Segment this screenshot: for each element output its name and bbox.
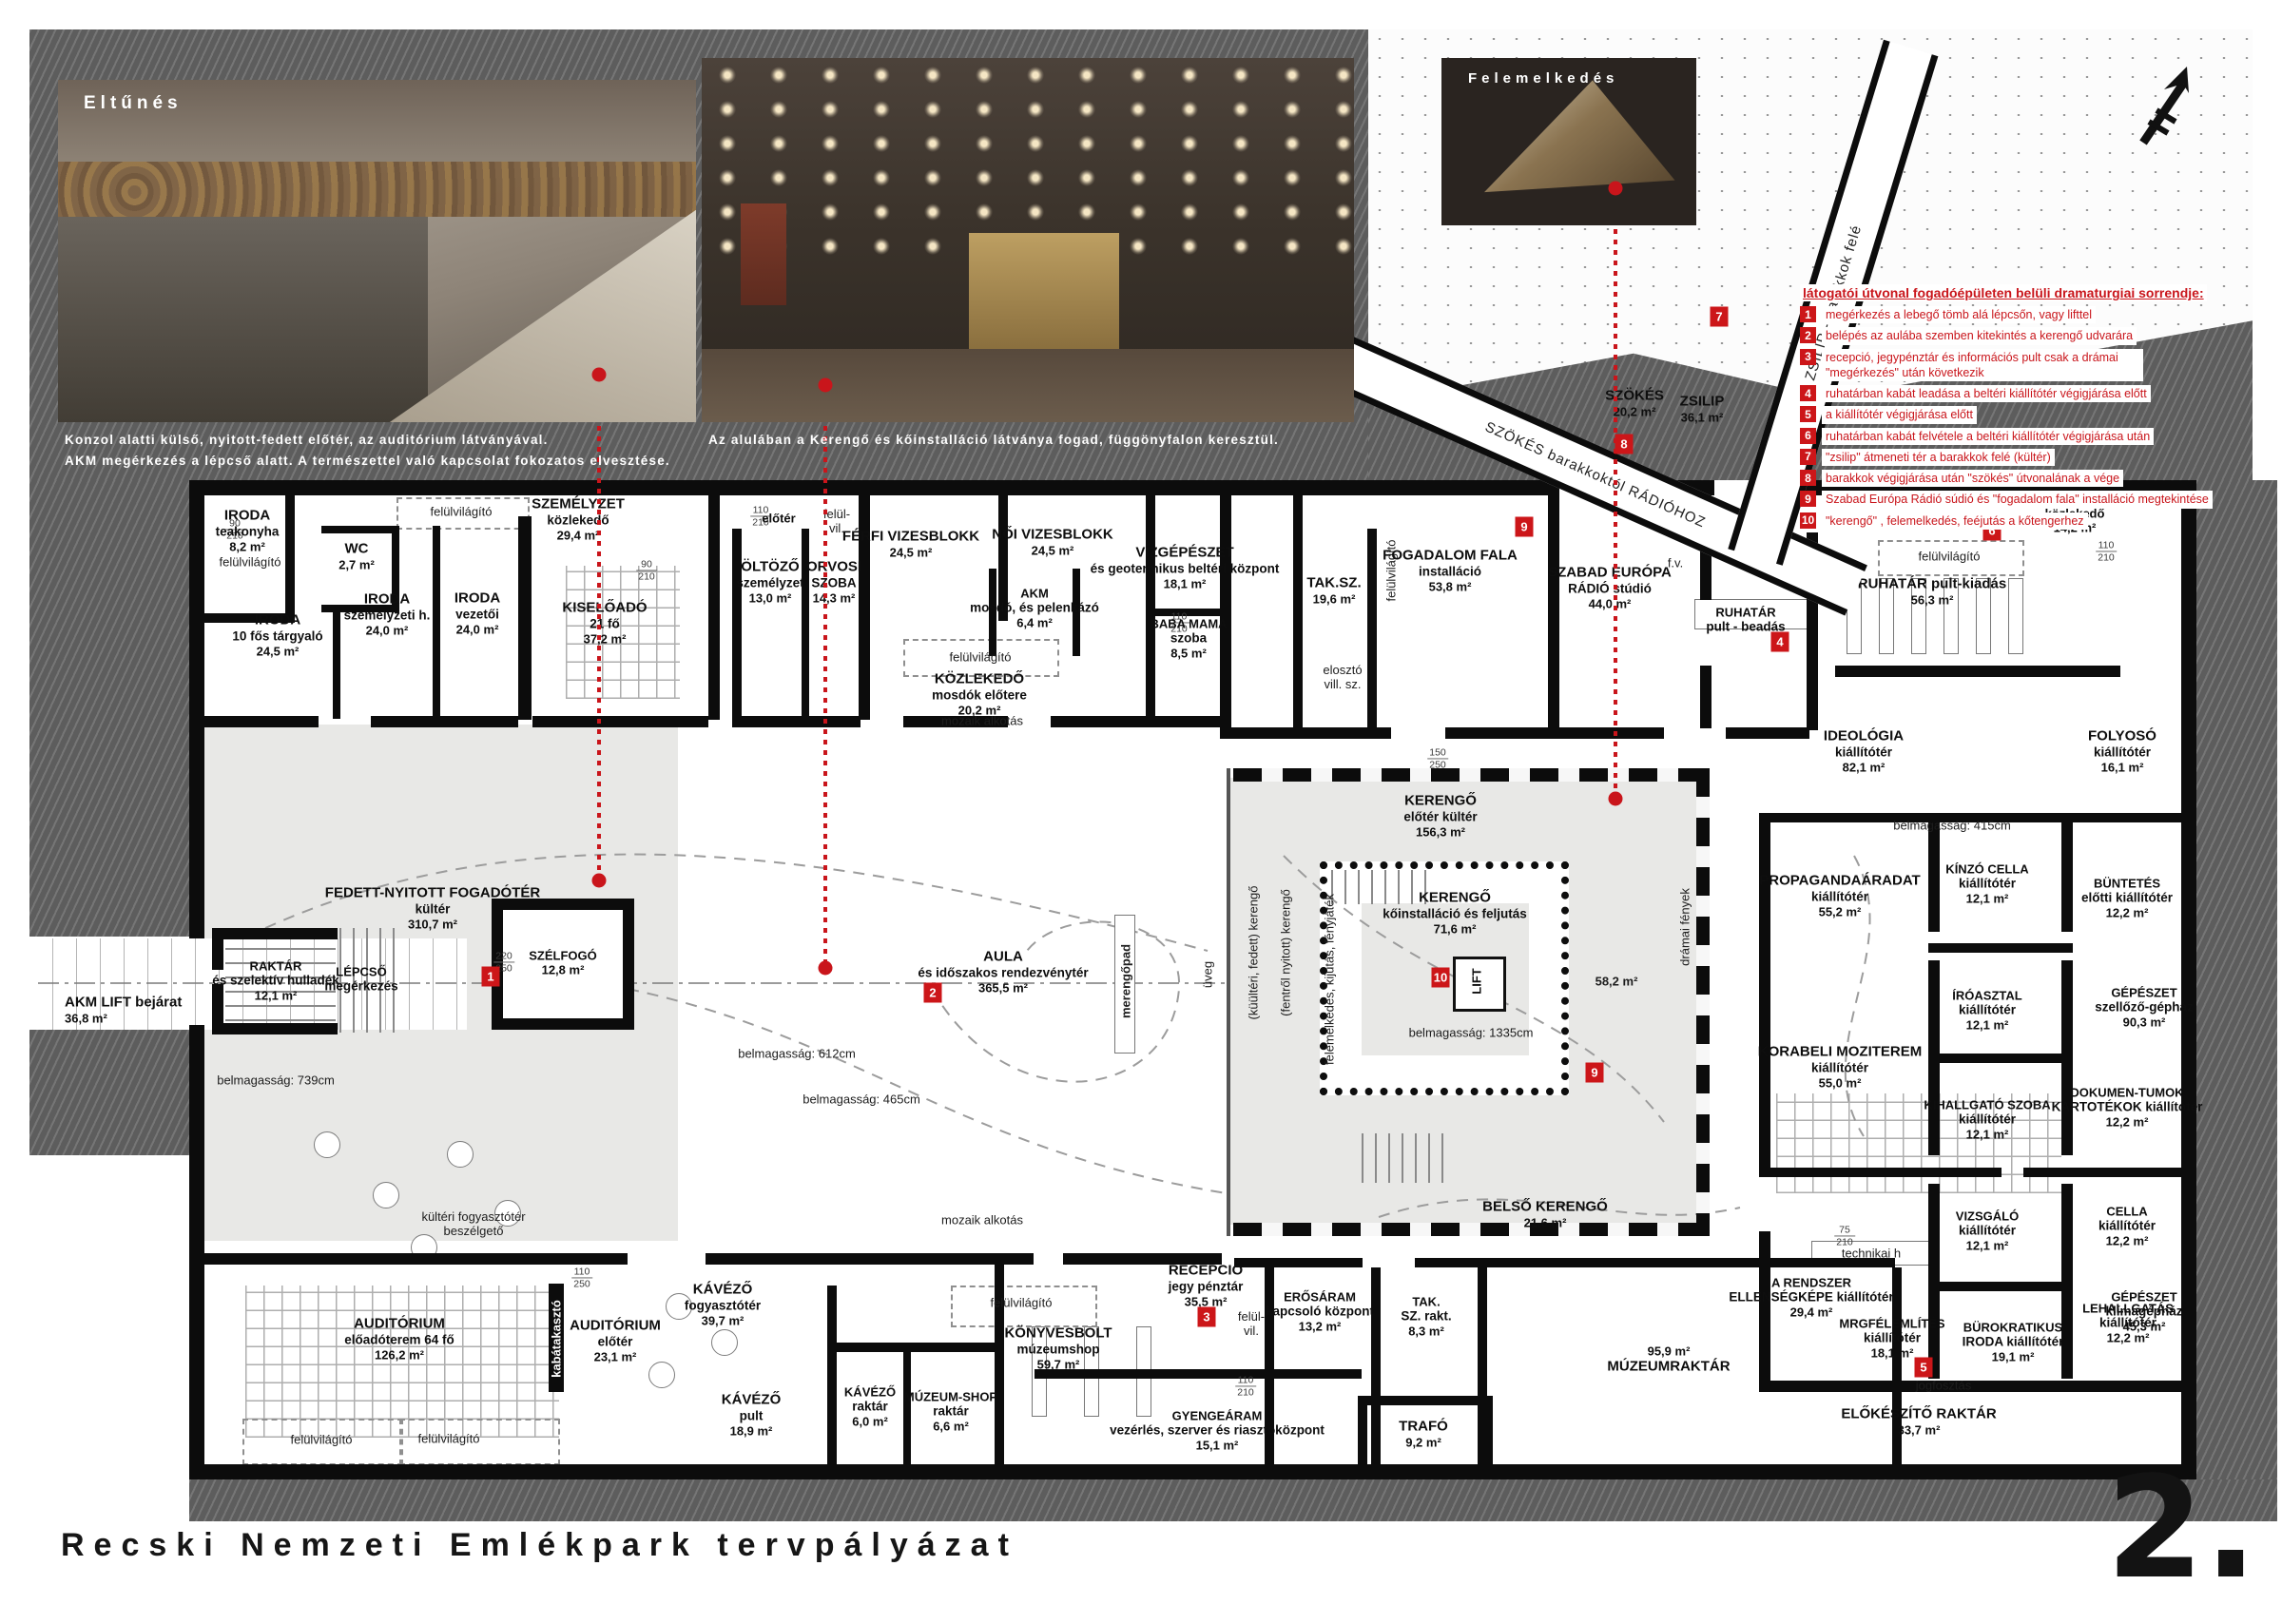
- room-name: előtér: [762, 511, 795, 525]
- wall: [204, 1253, 628, 1265]
- dim-value: 210: [1235, 1386, 1256, 1399]
- room-sub: kiállítótér: [1924, 1112, 2050, 1128]
- room-label-lift: LIFT: [1469, 968, 1483, 994]
- room-sub: kiállítótér: [1758, 1060, 1923, 1075]
- room-sub: személyzeti h.: [344, 608, 431, 623]
- room-name: FOGADALOM FALA: [1383, 548, 1518, 564]
- wall: [1234, 1258, 1363, 1267]
- route-item-text: recepció, jegypénztár és információs pul…: [1822, 349, 2143, 382]
- route-marker-3: 3: [1198, 1307, 1216, 1327]
- room-sub: KARTOTÉKOK kiállítótér: [2052, 1100, 2203, 1115]
- room-label-kavezo-fogyaszto: KÁVÉZŐfogyasztótér39,7 m²: [685, 1282, 761, 1328]
- wall: [1928, 1282, 2073, 1291]
- room-name: SZÉLFOGÓ: [529, 949, 597, 963]
- room-sub: SZ. rakt.: [1401, 1309, 1451, 1324]
- wall: [706, 1253, 1034, 1265]
- wall: [802, 529, 809, 719]
- route-item: 6ruhatárban kabát felvétele a beltéri ki…: [1800, 428, 2277, 445]
- room-label-mshop-raktar: MÚZEUM-SHOPraktár6,6 m²: [904, 1390, 997, 1435]
- route-item-number: 6: [1800, 428, 1816, 444]
- room-sub: közlekedő: [532, 512, 625, 528]
- wall: [1928, 943, 2073, 953]
- dramai-fenyek-label: drámai fények: [1678, 888, 1692, 966]
- room-sub: előtér kültér: [1403, 809, 1477, 824]
- room-sub: installáció: [1383, 564, 1518, 579]
- route-marker-4: 4: [1771, 632, 1789, 652]
- render-eltunes-tag: Eltűnés: [84, 93, 183, 114]
- skylight-label: felülvilágító: [990, 1296, 1052, 1310]
- wall: [1415, 1258, 1895, 1267]
- room-name: BABA MAMA: [1150, 617, 1227, 631]
- room-area: 90,3 m²: [2095, 1015, 2194, 1030]
- room-area: 6,6 m²: [904, 1420, 997, 1434]
- room-label-fogadoter: FEDETT-NYITOTT FOGADÓTÉRkültér310,7 m²: [325, 885, 540, 932]
- wall: [285, 495, 295, 623]
- wall: [433, 526, 440, 718]
- coat-rack: [2008, 578, 2023, 654]
- route-item: 1megérkezés a lebegő tömb alá lépcsőn, v…: [1800, 306, 2277, 323]
- route-marker-8: 8: [1615, 435, 1634, 454]
- room-label-iroasztal: ÍRÓASZTALkiállítótér12,1 m²: [1952, 989, 2021, 1034]
- skylight-label: felülvilágító: [219, 555, 280, 570]
- room-name: FEDETT-NYITOTT FOGADÓTÉR: [325, 885, 540, 901]
- table-glyph: [314, 1131, 340, 1158]
- room-sub: kiállítótér: [2088, 744, 2156, 760]
- room-name: IDEOLÓGIA: [1824, 728, 1904, 744]
- room-area: 82,1 m²: [1824, 760, 1904, 774]
- room-name: FÉRFI VIZESBLOKK: [842, 528, 979, 544]
- room-area: 12,2 m²: [2082, 1331, 2174, 1345]
- room-sub: kültér: [325, 901, 540, 917]
- route-item-text: ruhatárban kabát felvétele a beltéri kiá…: [1822, 428, 2154, 445]
- route-item-number: 1: [1800, 306, 1816, 322]
- table-glyph: [711, 1329, 738, 1356]
- dim-value: 210: [2096, 551, 2117, 564]
- room-label-korabeli-moziterem: KORABELI MOZITEREMkiállítótér55,0 m²: [1758, 1044, 1923, 1091]
- route-item: 2belépés az aulába szemben kitekintés a …: [1800, 327, 2277, 344]
- room-area: 24,5 m²: [842, 545, 979, 559]
- room-sub: szoba: [1150, 631, 1227, 647]
- route-item-number: 2: [1800, 327, 1816, 343]
- route-marker-9: 9: [1516, 517, 1534, 537]
- room-name: WC: [344, 540, 368, 556]
- room-name: SZABAD EURÓPA: [1548, 565, 1672, 581]
- room-area: 12,2 m²: [2098, 1234, 2156, 1248]
- room-area: 19,6 m²: [1306, 591, 1361, 606]
- room-name: LIFT: [1469, 968, 1483, 994]
- room-label-kerengo-eloter: KERENGŐelőtér kültér156,3 m²: [1403, 793, 1477, 840]
- route-item: 5a kiállítótér végigjárása előtt: [1800, 406, 2277, 423]
- room-area: 21,6 m²: [1482, 1215, 1608, 1229]
- room-name: ORVOSI: [806, 559, 861, 575]
- room-name: KERENGŐ: [1419, 890, 1491, 906]
- dim-value: 110: [1235, 1374, 1256, 1385]
- table-glyph: [648, 1362, 675, 1388]
- wall: [2181, 480, 2196, 1479]
- room-label-oltozo: ÖLTÖZŐszemélyzet13,0 m²: [736, 559, 803, 606]
- wall: [212, 1023, 338, 1034]
- room-label-auditorium: AUDITÓRIUMelőadóterem 64 fő126,2 m²: [344, 1316, 454, 1363]
- merengopad-label: merengőpad: [1119, 944, 1133, 1018]
- room-label-eloter: előtér: [762, 511, 795, 525]
- room-label-megfelemlites: MRGFÉLEMLÍTÉSkiállítótér18,1 m²: [1839, 1317, 1944, 1362]
- dim-value: 210: [636, 570, 657, 583]
- render-kerengo-floor: [702, 349, 1354, 422]
- kerengo-glass-wall: [1227, 768, 1230, 1236]
- room-name: SZEMÉLYZET: [532, 496, 625, 512]
- room-label-cella: CELLAkiállítótér12,2 m²: [2098, 1205, 2156, 1249]
- route-list: látogatói útvonal fogadóépületen belüli …: [1800, 285, 2277, 530]
- render-eltunes-stair: [390, 210, 696, 422]
- room-area: 12,1 m²: [1924, 1128, 2050, 1142]
- room-label-ruhatar-beadas: RUHATÁRpult - beadás: [1706, 605, 1785, 634]
- room-name: A RENDSZER: [1771, 1276, 1851, 1290]
- route-item-number: 5: [1800, 406, 1816, 422]
- room-sub: teakonyha: [216, 524, 280, 539]
- room-area: 24,0 m²: [454, 622, 500, 636]
- route-item-text: barakkok végigjárása után "szökés" útvon…: [1822, 470, 2123, 487]
- room-name: KORABELI MOZITEREM: [1758, 1044, 1923, 1060]
- room-sub: kiállítótér: [1945, 877, 2028, 892]
- room-name: CELLA: [2106, 1205, 2147, 1219]
- room-sub: kiállítótér: [1839, 1331, 1944, 1346]
- room-area: 12,1 m²: [1945, 892, 2028, 906]
- dim-value: 150: [1427, 746, 1448, 758]
- route-item-number: 10: [1800, 512, 1816, 529]
- room-area: 12,1 m²: [1952, 1018, 2021, 1033]
- outdoor-seating-label: kültéri fogyasztótér beszélgető: [421, 1209, 525, 1238]
- room-label-kavezo-pult: KÁVÉZŐpult18,9 m²: [722, 1392, 782, 1439]
- room-name: ÍRÓASZTAL: [1952, 989, 2021, 1003]
- eloszto-label: elosztó vill. sz.: [1323, 663, 1362, 691]
- wall: [708, 495, 720, 720]
- room-sub: vezérlés, szerver és riasztóközpont: [1110, 1423, 1325, 1439]
- height-label: belmagasság: 739cm: [217, 1073, 335, 1088]
- room-name: LÉPCSŐ: [336, 964, 386, 978]
- room-name: RECEPCIÓ: [1169, 1263, 1243, 1279]
- room-label-szemelyzet-kozlekedo: SZEMÉLYZETközlekedő29,4 m²: [532, 496, 625, 543]
- room-sub: kapcsoló központ: [1266, 1305, 1374, 1320]
- room-label-trafo: TRAFÓ9,2 m²: [1399, 1418, 1448, 1449]
- section-line: [1614, 198, 1617, 793]
- presentation-board: SZÖKÉS barakkoktól RÁDIÓHOZ ZSILIP - bar…: [0, 0, 2282, 1624]
- room-area: 14,3 m²: [806, 590, 861, 605]
- wall: [212, 928, 338, 939]
- room-sub: kiállítótér: [2082, 1316, 2174, 1331]
- section-dot: [1609, 792, 1623, 806]
- section-dot: [592, 874, 607, 888]
- room-label-akm-mosdo: AKMmosdó, és pelenkázó6,4 m²: [970, 587, 1099, 631]
- room-sub: előtti kiállítótér: [2081, 891, 2173, 906]
- room-name: TAK.: [1412, 1295, 1440, 1309]
- room-area: 12,2 m²: [2081, 906, 2173, 920]
- page-number: 2.: [2106, 1476, 2257, 1581]
- room-sub: megérkezés: [324, 979, 397, 995]
- room-area: 59,7 m²: [1004, 1357, 1112, 1371]
- room-sub: vezetői: [454, 607, 500, 622]
- skylight-label: felül- vil.: [1238, 1309, 1265, 1338]
- room-area: 12,1 m²: [212, 989, 339, 1003]
- room-area: 6,4 m²: [970, 616, 1099, 630]
- wall: [321, 526, 399, 533]
- dim-value: 220: [493, 950, 514, 961]
- room-name: BELSŐ KERENGŐ: [1482, 1198, 1608, 1214]
- wall: [1358, 1405, 1367, 1470]
- room-name: MÚZEUM-SHOP: [904, 1390, 997, 1404]
- room-name: NŐI VIZESBLOKK: [992, 526, 1113, 542]
- technikai-label: technikai h: [1842, 1247, 1901, 1261]
- render-eltunes-foliage: [58, 162, 696, 217]
- room-name: IRODA: [454, 590, 500, 607]
- room-sub: kiállítótér: [1952, 1003, 2021, 1018]
- route-item-text: a kiállítótér végigjárása előtt: [1822, 406, 1977, 423]
- jogfosztas-label: jogfosztás: [1916, 1379, 1972, 1393]
- room-label-akm-lift: AKM LIFT bejárat36,8 m²: [65, 994, 182, 1025]
- route-marker-9b: 9: [1586, 1063, 1604, 1083]
- room-area: 6,0 m²: [844, 1415, 896, 1429]
- height-label: belmagasság: 415cm: [1893, 819, 2011, 833]
- room-label-elokeszito: ELŐKÉSZÍTŐ RAKTÁR33,7 m²: [1841, 1405, 1996, 1437]
- room-sub: kiállítótér: [1759, 889, 1920, 904]
- wall: [827, 1286, 837, 1470]
- room-area: 44,0 m²: [1548, 596, 1672, 610]
- wall: [1051, 716, 1222, 727]
- room-area: 12,2 m²: [2052, 1115, 2203, 1130]
- render-kerengo-image: [702, 58, 1354, 422]
- height-label: belmagasság: 1335cm: [1409, 1026, 1534, 1040]
- room-area: 33,7 m²: [1841, 1422, 1996, 1437]
- room-label-raktar-szelektiv: RAKTÁRés szelektív hulladék12,1 m²: [212, 959, 339, 1004]
- room-label-rendszer: A RENDSZERELLENSÉGKÉPE kiállítótér29,4 m…: [1729, 1276, 1893, 1321]
- wall: [518, 516, 532, 720]
- wall: [1483, 1405, 1493, 1470]
- room-area: 29,4 m²: [532, 528, 625, 542]
- room-sub: és geotermikus beltéri központ: [1091, 561, 1280, 576]
- wall: [532, 716, 708, 727]
- room-label-vizgepeszet: VÍZGÉPÉSZETés geotermikus beltéri közpon…: [1091, 545, 1280, 591]
- render-felemelkedes-stone-sea: [1467, 71, 1684, 219]
- room-label-ideologia: IDEOLÓGIAkiállítótér82,1 m²: [1824, 728, 1904, 775]
- room-label-buntetes: BÜNTETÉSelőtti kiállítótér12,2 m²: [2081, 877, 2173, 921]
- room-name: KIHALLGATÓ SZOBA: [1924, 1098, 2050, 1112]
- room-label-erosaram: ERŐSÁRAMkapcsoló központ13,2 m²: [1266, 1290, 1374, 1335]
- room-label-auditorium-eloter: AUDITÓRIUMelőtér23,1 m²: [570, 1318, 661, 1364]
- wall: [2061, 822, 2073, 932]
- room-label-kiseloado: KISELŐADÓ21 fő37,2 m²: [562, 600, 647, 647]
- room-sub: raktár: [904, 1404, 997, 1420]
- height-label: belmagasság: 612cm: [738, 1047, 856, 1061]
- room-area: 19,1 m²: [1963, 1350, 2064, 1364]
- north-arrow-icon: [2130, 65, 2204, 152]
- skylight-label: felülvilágító: [290, 1433, 352, 1447]
- skylight-label: felülvilágító: [417, 1432, 479, 1446]
- kerengo-note: (küültéri, fedett) kerengő: [1247, 886, 1261, 1020]
- section-line: [823, 395, 827, 962]
- room-sub: raktár: [844, 1400, 896, 1415]
- route-item-text: ruhatárban kabát leadása a beltéri kiáll…: [1822, 385, 2151, 402]
- room-area: 8,5 m²: [1150, 647, 1227, 661]
- room-name: KÁVÉZŐ: [844, 1385, 896, 1400]
- room-area: 39,7 m²: [685, 1313, 761, 1327]
- room-area: 12,8 m²: [529, 963, 597, 977]
- route-marker-1: 1: [482, 967, 500, 987]
- room-name: KÖNYVESBOLT: [1004, 1325, 1112, 1342]
- room-name: VÍZGÉPÉSZET: [1135, 545, 1233, 561]
- dim-value: 110: [571, 1266, 592, 1277]
- room-label-aula: AULAés időszakos rendezvénytér365,5 m²: [918, 949, 1088, 996]
- room-label-kihallgato: KIHALLGATÓ SZOBAkiállítótér12,1 m²: [1924, 1098, 2050, 1143]
- room-label-vizsgalo: VIZSGÁLÓkiállítótér12,1 m²: [1956, 1209, 2019, 1254]
- wall: [827, 1343, 1002, 1352]
- room-label-gyengearam: GYENGEÁRAMvezérlés, szerver és riasztókö…: [1110, 1409, 1325, 1454]
- room-name: TAK.SZ.: [1306, 574, 1361, 590]
- room-sub: 21 fő: [562, 616, 647, 631]
- route-item-number: 7: [1800, 449, 1816, 465]
- room-label-iroda-teakonyha: IRODAteakonyha8,2 m²: [216, 508, 280, 554]
- wall: [1220, 495, 1231, 727]
- room-name: GYENGEÁRAM: [1172, 1409, 1263, 1423]
- wall: [732, 716, 861, 727]
- room-area: 13,0 m²: [736, 590, 803, 605]
- room-area: 9,2 m²: [1399, 1435, 1448, 1449]
- render-eltunes-glass-wall: [58, 217, 428, 422]
- room-label-kerengo-ko: KERENGŐkőinstalláció és feljutás71,6 m²: [1383, 890, 1527, 937]
- room-area: 126,2 m²: [344, 1347, 454, 1362]
- wall: [1835, 666, 2120, 677]
- wall: [189, 1025, 204, 1479]
- room-area: 16,1 m²: [2088, 760, 2156, 774]
- section-dot: [819, 961, 833, 976]
- room-name: AUDITÓRIUM: [354, 1316, 445, 1332]
- room-label-folyoso: FOLYOSÓkiállítótér16,1 m²: [2088, 728, 2156, 775]
- route-marker-10: 10: [1432, 968, 1450, 988]
- room-sub: személyzet: [736, 575, 803, 590]
- room-name: MÚZEUMRAKTÁR: [1607, 1359, 1730, 1375]
- room-area: 156,3 m²: [1403, 824, 1477, 839]
- wall: [371, 716, 518, 727]
- room-name: ÖLTÖZŐ: [741, 559, 799, 575]
- room-label-kozlekedo-mosdok: KÖZLEKEDŐmosdók előtere20,2 m²: [932, 671, 1027, 718]
- kerengo-stair-bottom: [1362, 1133, 1447, 1183]
- kerengo-pillar-wall-right: [1696, 768, 1710, 1236]
- room-sub: SZOBA: [806, 575, 861, 590]
- room-name: ELŐKÉSZÍTŐ RAKTÁR: [1841, 1405, 1996, 1421]
- wall: [189, 480, 1559, 495]
- room-label-zsilip: ZSILIP36,1 m²: [1680, 393, 1725, 424]
- room-name: MRGFÉLEMLÍTÉS: [1839, 1317, 1944, 1331]
- kerengo-note: felemelkedés, kijutás, fényjáték: [1323, 894, 1337, 1065]
- route-item-text: belépés az aulába szemben kitekintés a k…: [1822, 327, 2137, 344]
- room-area: 36,8 m²: [65, 1011, 182, 1025]
- room-name: KERENGŐ: [1404, 793, 1477, 809]
- room-label-szelfogo: SZÉLFOGÓ12,8 m²: [529, 949, 597, 978]
- area-58-label: 58,2 m²: [1595, 975, 1638, 989]
- room-name: LEHALLGATÁS: [2082, 1302, 2174, 1316]
- route-item-text: Szabad Európa Rádió súdió és "fogadalom …: [1822, 491, 2213, 508]
- route-list-title: látogatói útvonal fogadóépületen belüli …: [1800, 284, 2207, 301]
- skylight-label: felülvilágító: [430, 505, 492, 519]
- room-name: AKM LIFT bejárat: [65, 994, 182, 1010]
- room-sub: ELLENSÉGKÉPE kiállítótér: [1729, 1290, 1893, 1305]
- room-sub: kőinstalláció és feljutás: [1383, 906, 1527, 921]
- room-name: RUHATÁR: [1715, 605, 1775, 619]
- route-item-number: 4: [1800, 385, 1816, 401]
- route-item: 9Szabad Európa Rádió súdió és "fogadalom…: [1800, 491, 2277, 508]
- room-sub: múzeumshop: [1004, 1342, 1112, 1357]
- section-dot: [1609, 182, 1623, 196]
- room-label-burokratikus: BÜROKRATIKUSIRODA kiállítótér19,1 m²: [1963, 1321, 2064, 1365]
- room-sub: és időszakos rendezvénytér: [918, 965, 1088, 980]
- dim-value: 75: [1834, 1224, 1855, 1235]
- skylight-label: felülvilágító: [1918, 550, 1980, 564]
- route-item-number: 8: [1800, 470, 1816, 486]
- room-area: 15,1 m²: [1110, 1439, 1325, 1453]
- room-name: IRODA: [255, 612, 300, 628]
- room-label-ruhatar-kiadas: RUHATÁR pult-kiadás56,3 m²: [1858, 575, 2006, 607]
- room-label-orvosi: ORVOSISZOBA14,3 m²: [806, 559, 861, 606]
- room-sub: jegy pénztár: [1169, 1279, 1244, 1294]
- room-name: DOKUMEN-TUMOK: [2070, 1086, 2183, 1100]
- room-sub: előtér: [570, 1334, 661, 1349]
- room-name: PROPAGANDAÁRADAT: [1759, 873, 1920, 889]
- room-name: KISELŐADÓ: [562, 600, 647, 616]
- coat-hook-label: kabátakasztó: [550, 1300, 564, 1378]
- kerengo-note: (fentről nyitott) kerengő: [1279, 889, 1293, 1016]
- route-item-number: 9: [1800, 491, 1816, 507]
- render-kerengo-caption: Az alulában a Kerengő és kőinstalláció l…: [708, 430, 1355, 451]
- room-label-kavezo-raktar: KÁVÉZŐraktár6,0 m²: [844, 1385, 896, 1430]
- room-name: IRODA: [224, 508, 270, 524]
- room-sub: 10 fős tárgyaló: [232, 628, 322, 644]
- wall: [732, 529, 742, 719]
- room-area: 18,9 m²: [722, 1423, 782, 1438]
- route-item: 8barakkok végigjárása után "szökés" útvo…: [1800, 470, 2277, 487]
- room-sub: kiállítótér: [2098, 1219, 2156, 1234]
- table-glyph: [373, 1182, 399, 1208]
- uveg-label: üveg: [1201, 961, 1215, 988]
- room-label-gepeszet-szellozo: GÉPÉSZETszellőző-gépház90,3 m²: [2095, 986, 2194, 1031]
- room-name: RAKTÁR: [250, 959, 302, 974]
- room-area: 55,0 m²: [1758, 1075, 1923, 1090]
- room-label-kinzo-cella: KÍNZÓ CELLAkiállítótér12,1 m²: [1945, 862, 2028, 907]
- room-label-dokumentumok: DOKUMEN-TUMOKKARTOTÉKOK kiállítótér12,2 …: [2052, 1086, 2203, 1131]
- room-label-propaganda: PROPAGANDAÁRADATkiállítótér55,2 m²: [1759, 873, 1920, 919]
- route-item: 4ruhatárban kabát leadása a beltéri kiál…: [1800, 385, 2277, 402]
- room-sub: fogyasztótér: [685, 1298, 761, 1313]
- room-area: 20,2 m²: [932, 703, 1027, 717]
- route-item-text: "kerengő" , felemelkedés, feéjutás a kőt…: [1822, 512, 2088, 530]
- room-sub: mosdó, és pelenkázó: [970, 601, 1099, 616]
- wall: [1548, 495, 1559, 727]
- wall: [1759, 1381, 2196, 1392]
- mozaik-label: mozaik alkotás: [941, 1213, 1023, 1228]
- room-label-lepcso: LÉPCSŐmegérkezés: [324, 964, 397, 994]
- section-dot: [592, 368, 607, 382]
- dim-value: 250: [571, 1278, 592, 1290]
- room-label-tak-sz: TAK.SZ.19,6 m²: [1306, 574, 1361, 606]
- dim-value: 90: [636, 558, 657, 570]
- render-kerengo-art-left: [741, 203, 786, 305]
- room-name: AUDITÓRIUM: [570, 1318, 661, 1334]
- route-item: 3recepció, jegypénztár és információs pu…: [1800, 349, 2277, 382]
- dim-value: 110: [2096, 539, 2117, 551]
- room-name: GÉPÉSZET: [2111, 986, 2176, 1000]
- wall: [1445, 727, 1664, 739]
- room-area: 56,3 m²: [1858, 592, 2006, 607]
- room-area: 8,3 m²: [1401, 1324, 1451, 1339]
- room-label-iroda-szemelyzeti: IRODAszemélyzeti h.24,0 m²: [344, 591, 431, 638]
- room-sub: pult: [722, 1408, 782, 1423]
